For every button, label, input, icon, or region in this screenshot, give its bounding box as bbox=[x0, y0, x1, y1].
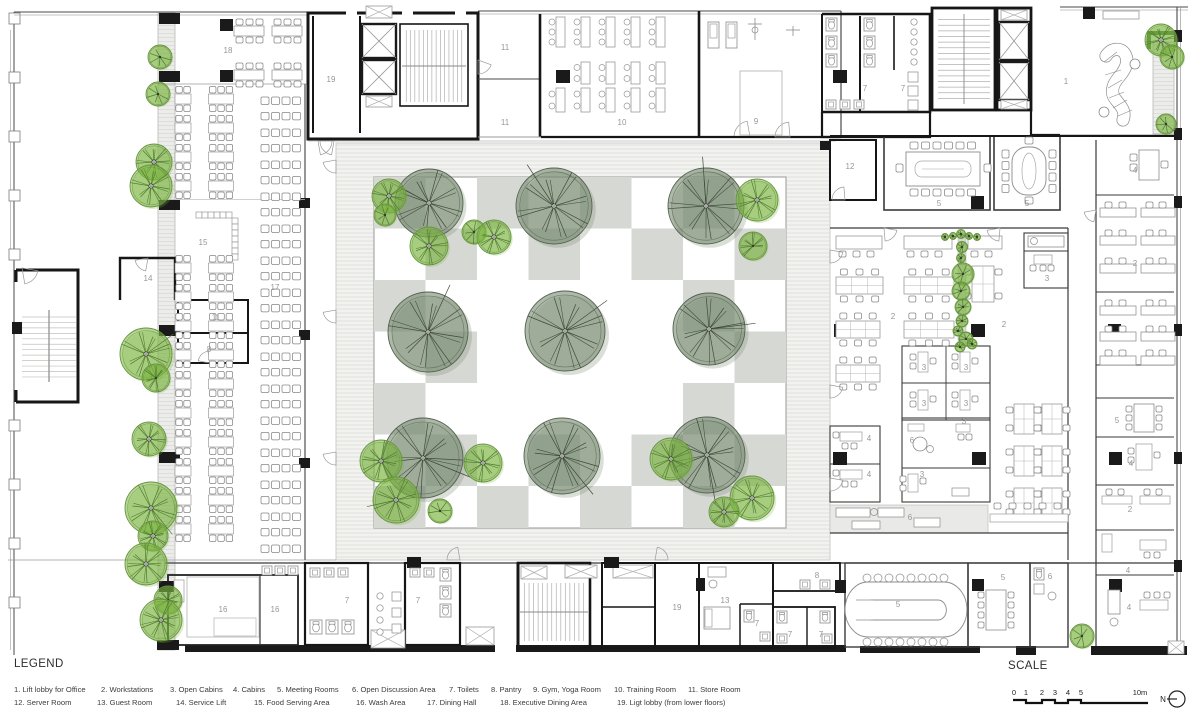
svg-text:15. Food Serving Area: 15. Food Serving Area bbox=[254, 698, 330, 707]
svg-text:3: 3 bbox=[920, 470, 925, 479]
svg-text:13: 13 bbox=[721, 596, 730, 605]
svg-text:7: 7 bbox=[788, 630, 793, 639]
svg-text:7: 7 bbox=[416, 596, 421, 605]
svg-text:2: 2 bbox=[1133, 259, 1138, 268]
svg-text:19: 19 bbox=[327, 75, 336, 84]
svg-text:N: N bbox=[1160, 695, 1166, 704]
svg-text:5: 5 bbox=[1025, 199, 1030, 208]
svg-text:5: 5 bbox=[1001, 573, 1006, 582]
svg-text:12: 12 bbox=[846, 162, 855, 171]
svg-text:5: 5 bbox=[896, 600, 901, 609]
svg-text:3: 3 bbox=[962, 417, 967, 426]
svg-text:5: 5 bbox=[937, 199, 942, 208]
svg-text:8: 8 bbox=[207, 345, 212, 354]
svg-text:19: 19 bbox=[673, 603, 682, 612]
svg-text:3. Open Cabins: 3. Open Cabins bbox=[170, 685, 223, 694]
svg-text:16: 16 bbox=[219, 605, 228, 614]
svg-text:19. Ligt lobby (from lower: 19. Ligt lobby (from lower floors) bbox=[617, 698, 726, 707]
svg-text:SCALE: SCALE bbox=[1008, 660, 1048, 672]
svg-text:8. Pantry: 8. Pantry bbox=[491, 685, 522, 694]
svg-text:7: 7 bbox=[345, 596, 350, 605]
svg-text:1: 1 bbox=[1024, 688, 1028, 697]
svg-text:LEGEND: LEGEND bbox=[14, 658, 64, 670]
svg-text:10. Training Room: 10. Training Room bbox=[614, 685, 676, 694]
svg-text:6: 6 bbox=[910, 436, 915, 445]
svg-text:10m: 10m bbox=[1133, 688, 1148, 697]
svg-text:11: 11 bbox=[501, 43, 510, 52]
svg-text:3: 3 bbox=[964, 363, 969, 372]
svg-text:4: 4 bbox=[1126, 566, 1131, 575]
svg-text:17. Dining Hall: 17. Dining Hall bbox=[427, 698, 477, 707]
svg-text:14. Service Lift: 14. Service Lift bbox=[176, 698, 227, 707]
svg-text:4: 4 bbox=[1133, 166, 1138, 175]
svg-text:7: 7 bbox=[901, 84, 906, 93]
svg-text:3: 3 bbox=[964, 399, 969, 408]
svg-text:11: 11 bbox=[501, 118, 510, 127]
svg-text:3: 3 bbox=[1045, 274, 1050, 283]
svg-text:5: 5 bbox=[1115, 416, 1120, 425]
svg-text:4: 4 bbox=[867, 434, 872, 443]
svg-text:0: 0 bbox=[1012, 688, 1016, 697]
svg-text:7: 7 bbox=[819, 630, 824, 639]
svg-text:6: 6 bbox=[908, 513, 913, 522]
svg-text:4: 4 bbox=[1129, 459, 1134, 468]
svg-text:11. Store Room: 11. Store Room bbox=[688, 685, 741, 694]
svg-text:7. Toilets: 7. Toilets bbox=[449, 685, 479, 694]
svg-text:12. Server Room: 12. Server Room bbox=[14, 698, 71, 707]
svg-text:4: 4 bbox=[867, 470, 872, 479]
svg-text:13. Guest Room: 13. Guest Room bbox=[97, 698, 152, 707]
svg-text:1: 1 bbox=[1064, 77, 1069, 86]
svg-text:18. Executive Dining Area: 18. Executive Dining Area bbox=[500, 698, 588, 707]
svg-text:5. Meeting Rooms: 5. Meeting Rooms bbox=[277, 685, 339, 694]
svg-text:2: 2 bbox=[1002, 320, 1007, 329]
svg-text:4. Cabins: 4. Cabins bbox=[233, 685, 265, 694]
svg-text:2: 2 bbox=[1128, 505, 1133, 514]
svg-text:8: 8 bbox=[815, 571, 820, 580]
svg-text:15: 15 bbox=[199, 238, 208, 247]
svg-text:18: 18 bbox=[224, 46, 233, 55]
svg-text:9: 9 bbox=[754, 117, 759, 126]
svg-text:2: 2 bbox=[1040, 688, 1044, 697]
svg-text:4: 4 bbox=[1127, 603, 1132, 612]
svg-text:2: 2 bbox=[891, 312, 896, 321]
svg-text:3: 3 bbox=[922, 363, 927, 372]
svg-text:5: 5 bbox=[1079, 688, 1083, 697]
svg-text:3: 3 bbox=[922, 399, 927, 408]
svg-text:6: 6 bbox=[1048, 572, 1053, 581]
svg-text:10: 10 bbox=[618, 118, 627, 127]
svg-text:9. Gym, Yoga Room: 9. Gym, Yoga Room bbox=[533, 685, 601, 694]
svg-text:17: 17 bbox=[271, 283, 280, 292]
svg-text:2. Workstations: 2. Workstations bbox=[101, 685, 153, 694]
svg-text:16: 16 bbox=[271, 605, 280, 614]
svg-text:16. Wash Area: 16. Wash Area bbox=[356, 698, 406, 707]
svg-text:1. Lift lobby for Office: 1. Lift lobby for Office bbox=[14, 685, 86, 694]
svg-text:14: 14 bbox=[144, 274, 153, 283]
svg-text:3: 3 bbox=[1053, 688, 1057, 697]
svg-text:6. Open Discussion Area: 6. Open Discussion Area bbox=[352, 685, 436, 694]
svg-text:7: 7 bbox=[863, 84, 868, 93]
svg-text:7: 7 bbox=[755, 619, 760, 628]
svg-text:4: 4 bbox=[1066, 688, 1070, 697]
svg-text:11: 11 bbox=[212, 313, 221, 322]
